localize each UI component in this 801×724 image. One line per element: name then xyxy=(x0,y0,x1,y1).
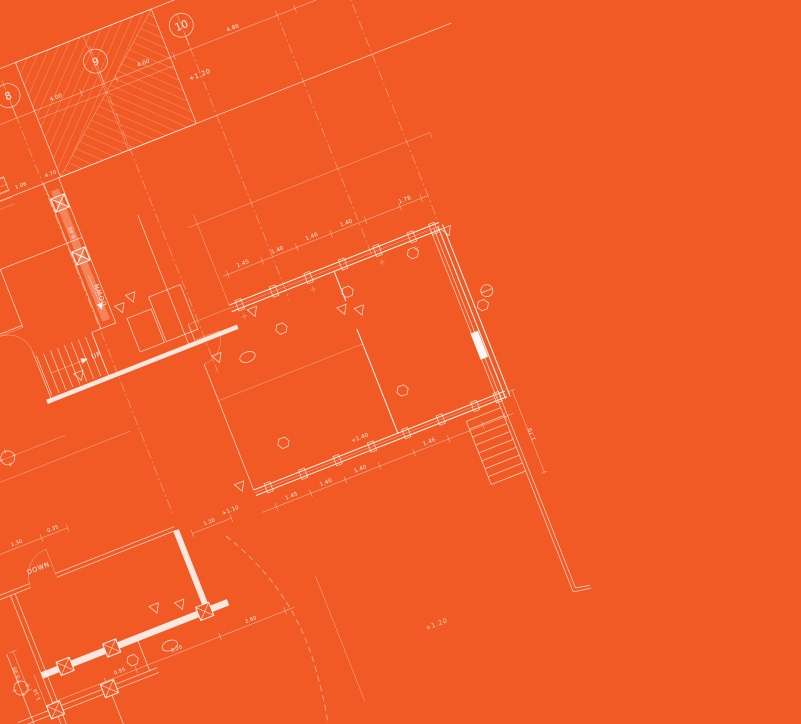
dim-label: 1.78 xyxy=(398,195,413,205)
vert-dim-lines xyxy=(9,646,52,716)
level-label-upper-floor: +1.40 xyxy=(351,432,370,444)
annotation-tags xyxy=(2,169,573,667)
level-label-top: +1.20 xyxy=(188,67,212,83)
dim-label: 1.46 xyxy=(305,232,320,242)
stair-right-treads xyxy=(466,408,525,485)
upper-ref-line xyxy=(184,123,461,309)
utility-circle xyxy=(9,676,32,699)
lower-ref-line xyxy=(315,575,364,701)
door-tag-oval-1 xyxy=(238,349,257,364)
dim-label: 2.60 xyxy=(244,615,257,625)
grid-label-8: 8 xyxy=(3,90,14,104)
stair-wall xyxy=(46,325,238,404)
dim-label: 0.35 xyxy=(46,524,59,534)
window-glass-upper xyxy=(230,226,439,308)
terrace-edge xyxy=(430,222,591,594)
utility-circle-ticks xyxy=(9,676,32,699)
dim-label: 1.40 xyxy=(319,478,334,488)
dim-label: 1.46 xyxy=(422,437,437,447)
dim-chain-lower xyxy=(261,410,515,516)
level-label-mid-floor: +1.10 xyxy=(221,505,240,517)
right-wall xyxy=(438,224,510,398)
dim-label: 1.10 xyxy=(33,688,43,701)
main-block: 1.45 1.40 1.46 1.40 1.78 1.45 1.40 1.40 … xyxy=(84,123,615,724)
dim-label: 0.90 xyxy=(12,666,22,679)
highlight-bar xyxy=(470,331,488,360)
partition-horizontal xyxy=(218,344,362,401)
blueprint-canvas: 8 9 10 4.00 4.00 4.80 +1.20 1.06 4.70 xyxy=(0,0,801,724)
dim-label: 1.45 xyxy=(285,491,300,501)
grid-label-10: 10 xyxy=(173,18,190,34)
thick-wall-vertical xyxy=(173,529,210,611)
dim-label: 1.40 xyxy=(339,218,354,228)
dim-label: 4.80 xyxy=(226,23,241,33)
left-wall xyxy=(188,324,253,490)
dim-label: 1.20 xyxy=(203,517,216,527)
wing-thin-lines xyxy=(0,308,259,509)
floor-plan-svg: 8 9 10 4.00 4.00 4.80 +1.20 1.06 4.70 xyxy=(0,0,801,724)
dim-label-stair: 1.70 xyxy=(527,426,537,441)
dim-label: 1.40 xyxy=(270,245,285,255)
roof-corner-box xyxy=(0,177,9,195)
roof-hatch: 1.06 4.70 xyxy=(0,9,199,223)
survey-crosshair xyxy=(0,446,19,469)
corridor: 0.40 DOWN xyxy=(44,178,116,329)
crosshair-ticks xyxy=(0,446,19,469)
room-tag-circle-line xyxy=(481,288,492,292)
stair-up-label: UP xyxy=(90,350,102,361)
dim-label: 1.30 xyxy=(10,539,23,549)
masonry-hatch-1 xyxy=(149,285,198,342)
window-glass-lower xyxy=(255,394,506,493)
dim-label: 4.70 xyxy=(44,169,57,179)
lower-down-label: DOWN xyxy=(26,560,51,576)
setback-arc xyxy=(226,536,328,724)
dim-label: 1.45 xyxy=(236,259,251,269)
wing-walls xyxy=(0,215,189,454)
dim-label: 0.95 xyxy=(113,667,126,677)
mullion-sub-dims xyxy=(240,245,420,321)
band-columns xyxy=(46,680,118,719)
dim-label: 1.06 xyxy=(14,181,27,191)
rotated-plan: 8 9 10 4.00 4.00 4.80 +1.20 1.06 4.70 xyxy=(0,0,671,724)
level-label-terrace: +1.20 xyxy=(424,616,448,632)
masonry-hatch-2 xyxy=(127,309,164,352)
door-tag-triangles xyxy=(40,175,545,620)
dim-label: 1.40 xyxy=(353,464,368,474)
